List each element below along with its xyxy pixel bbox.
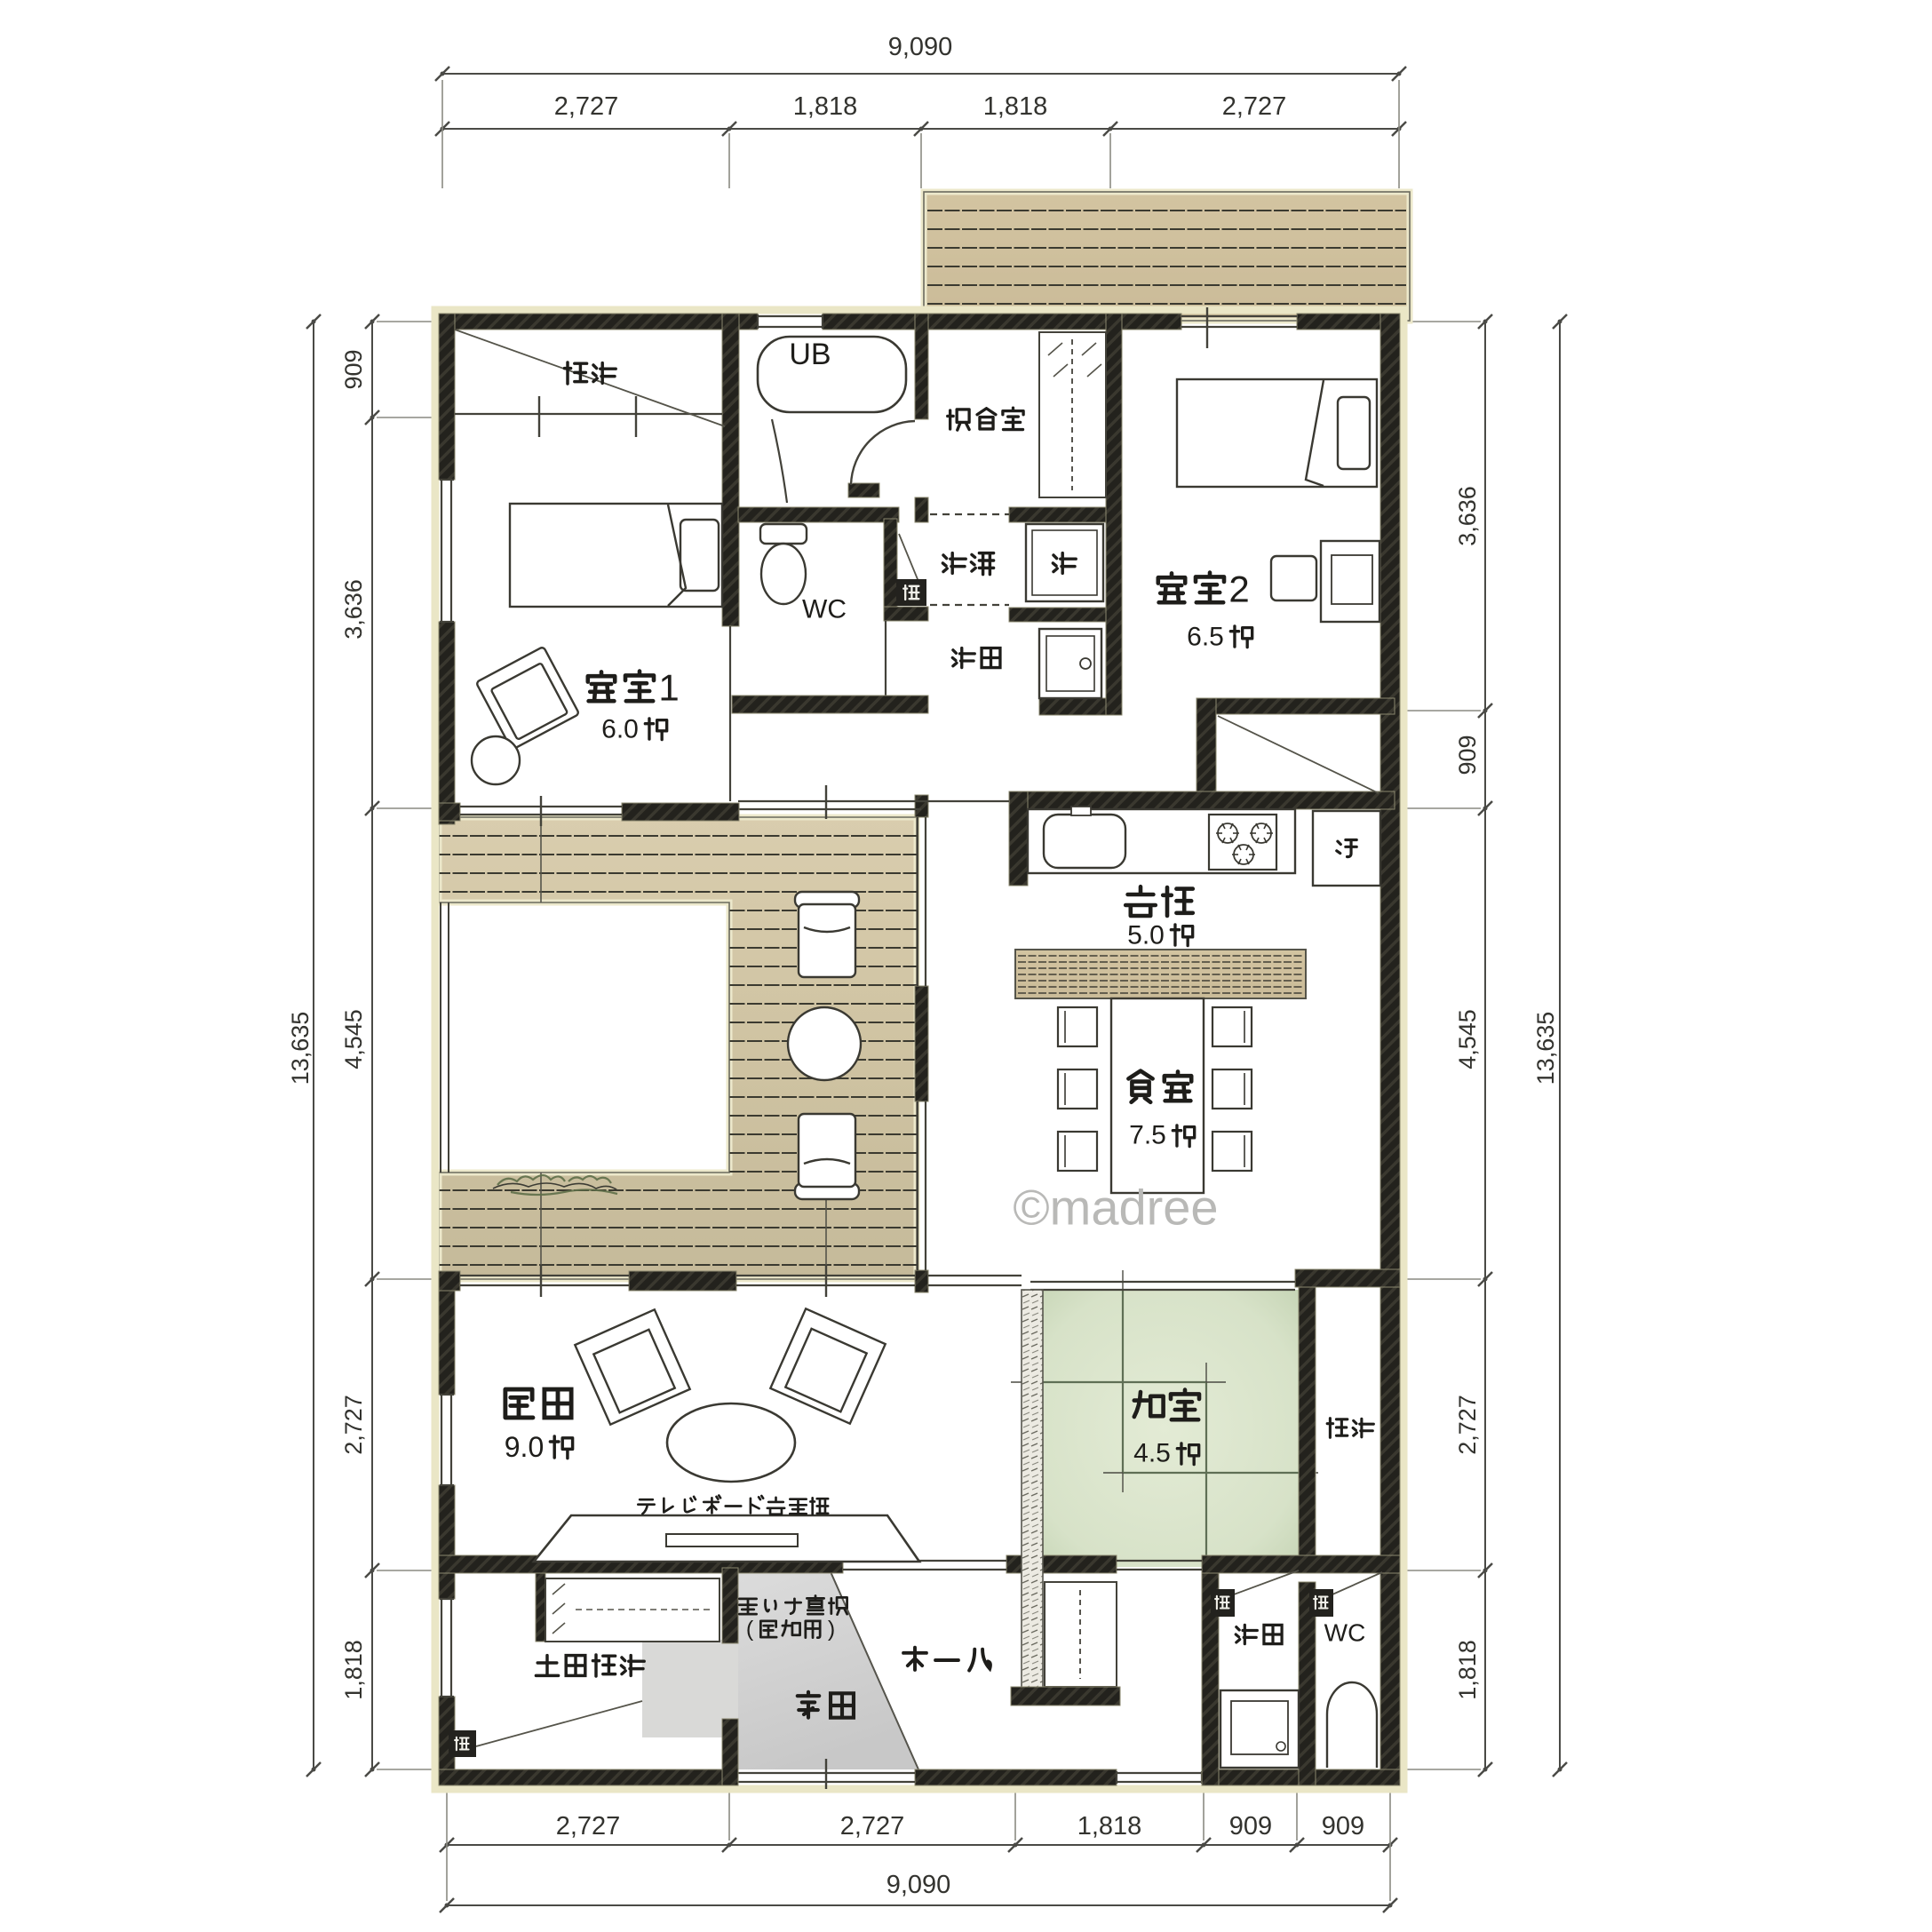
svg-text:4,545: 4,545 bbox=[1454, 1009, 1481, 1069]
svg-text:(: ( bbox=[746, 1617, 754, 1642]
svg-text:2,727: 2,727 bbox=[1222, 92, 1287, 121]
svg-text:4,545: 4,545 bbox=[340, 1009, 367, 1069]
svg-text:909: 909 bbox=[1229, 1812, 1272, 1841]
svg-text:UB: UB bbox=[789, 338, 831, 371]
svg-text:WC: WC bbox=[802, 595, 847, 624]
svg-text:5.0: 5.0 bbox=[1127, 921, 1165, 950]
svg-text:2: 2 bbox=[1228, 568, 1249, 610]
svg-text:1,818: 1,818 bbox=[793, 92, 858, 121]
svg-text:WC: WC bbox=[1324, 1619, 1366, 1647]
svg-text:©madree: ©madree bbox=[1013, 1180, 1218, 1236]
svg-text:): ) bbox=[828, 1617, 835, 1642]
svg-text:1: 1 bbox=[658, 667, 679, 709]
svg-text:2,727: 2,727 bbox=[840, 1812, 905, 1841]
svg-text:1,818: 1,818 bbox=[1077, 1812, 1142, 1841]
svg-text:909: 909 bbox=[1454, 735, 1481, 775]
svg-text:1,818: 1,818 bbox=[983, 92, 1048, 121]
svg-text:1,818: 1,818 bbox=[1454, 1640, 1481, 1700]
svg-text:2,727: 2,727 bbox=[554, 92, 619, 121]
svg-text:13,635: 13,635 bbox=[287, 1012, 314, 1085]
svg-text:9,090: 9,090 bbox=[886, 1871, 951, 1899]
svg-text:7.5: 7.5 bbox=[1129, 1121, 1166, 1150]
svg-text:3,636: 3,636 bbox=[1454, 486, 1481, 546]
svg-text:13,635: 13,635 bbox=[1532, 1012, 1559, 1085]
svg-text:4.5: 4.5 bbox=[1133, 1439, 1171, 1468]
svg-text:9.0: 9.0 bbox=[505, 1431, 544, 1463]
svg-text:1,818: 1,818 bbox=[340, 1640, 367, 1700]
svg-text:6.0: 6.0 bbox=[601, 715, 639, 744]
svg-text:2,727: 2,727 bbox=[340, 1395, 367, 1455]
svg-text:2,727: 2,727 bbox=[556, 1812, 621, 1841]
svg-text:6.5: 6.5 bbox=[1187, 623, 1224, 652]
svg-text:9,090: 9,090 bbox=[888, 33, 953, 61]
svg-text:909: 909 bbox=[1322, 1812, 1364, 1841]
svg-text:2,727: 2,727 bbox=[1454, 1395, 1481, 1455]
svg-text:909: 909 bbox=[340, 349, 367, 389]
svg-text:3,636: 3,636 bbox=[340, 579, 367, 640]
